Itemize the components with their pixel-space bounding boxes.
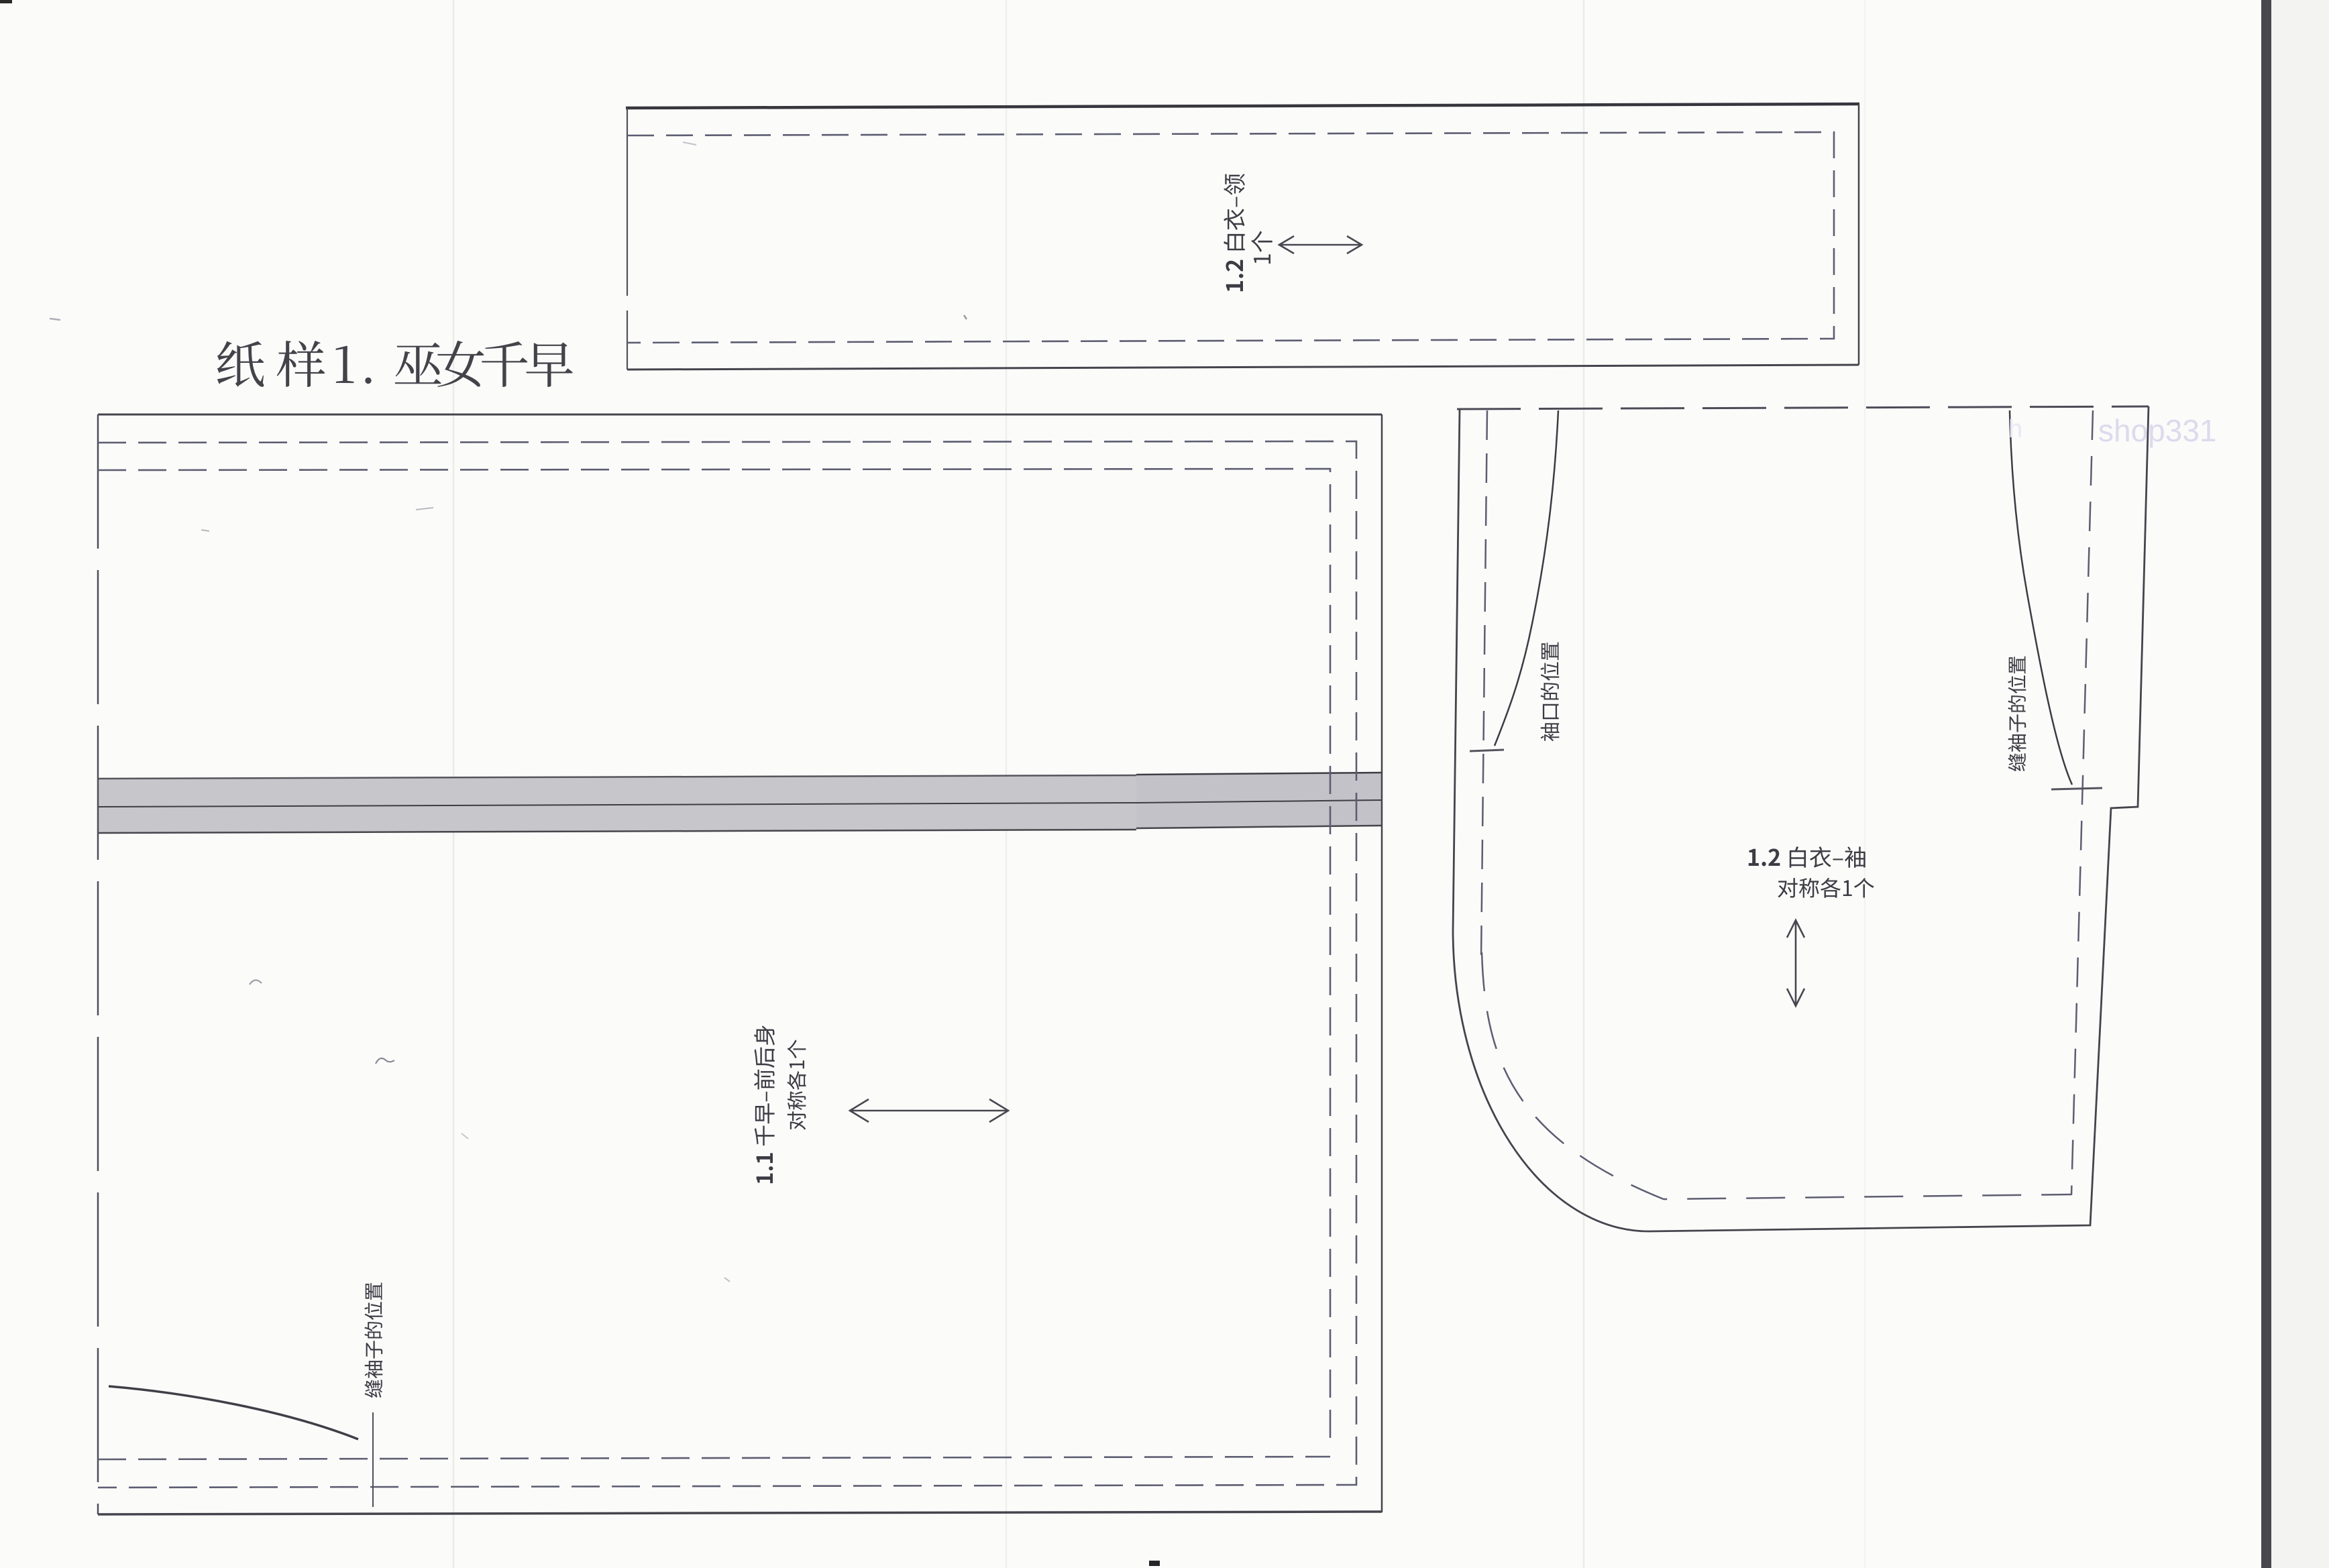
svg-text:shop331: shop331 (2098, 413, 2217, 448)
svg-text:h: h (2008, 415, 2022, 443)
